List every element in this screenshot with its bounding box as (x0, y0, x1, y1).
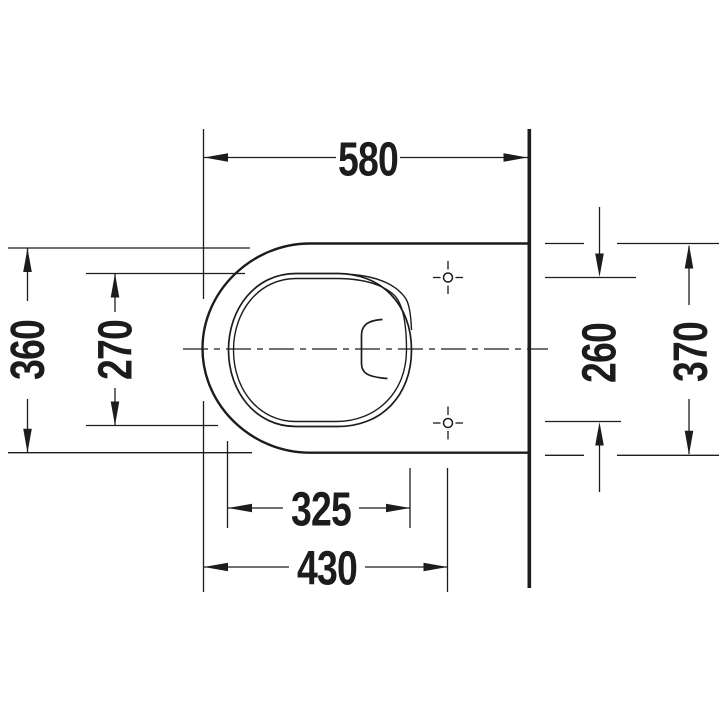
arrowhead-up (685, 245, 694, 269)
arrowhead-left (228, 504, 252, 513)
dimension-label-360: 360 (1, 320, 55, 380)
arrowhead-left (204, 153, 228, 162)
arrowhead-up (23, 248, 32, 272)
dimension-label-370: 370 (664, 322, 718, 382)
arrowhead-down (23, 429, 32, 453)
bowl-rim-inner (234, 279, 407, 422)
arrowhead-up (111, 274, 120, 298)
toilet-plan-drawing: 580 360 270 325 430 (0, 0, 720, 720)
fixing-hole-circle (444, 419, 453, 428)
dimension-label-430: 430 (297, 542, 357, 596)
dimension-bowl-inner-width: 270 (86, 274, 245, 426)
arrowhead-right (424, 563, 448, 572)
dimension-label-325: 325 (291, 483, 351, 537)
dimension-hole-spacing: 260 (545, 207, 636, 492)
wall-line (528, 129, 532, 588)
fixing-hole-marker-top (433, 261, 463, 294)
arrowhead-right (386, 504, 410, 513)
arrowhead-down (111, 402, 120, 426)
dimension-label-270: 270 (89, 320, 143, 380)
arrowhead-down (595, 254, 604, 278)
rim-swirl-line (352, 275, 412, 331)
dimension-label-260: 260 (573, 323, 627, 383)
arrowhead-left (204, 563, 228, 572)
technical-drawing-canvas: 580 360 270 325 430 (0, 0, 720, 720)
dimension-label-580: 580 (338, 133, 398, 187)
dimension-body-width: 370 (545, 244, 719, 456)
arrowhead-right (504, 153, 528, 162)
fixing-hole-marker-bottom (433, 407, 463, 440)
fixing-hole-circle (444, 273, 453, 282)
dimension-bowl-inner-length: 325 (228, 441, 411, 536)
arrowhead-up (595, 422, 604, 446)
dimension-overall-depth: 580 (204, 129, 528, 299)
arrowhead-down (685, 431, 694, 455)
